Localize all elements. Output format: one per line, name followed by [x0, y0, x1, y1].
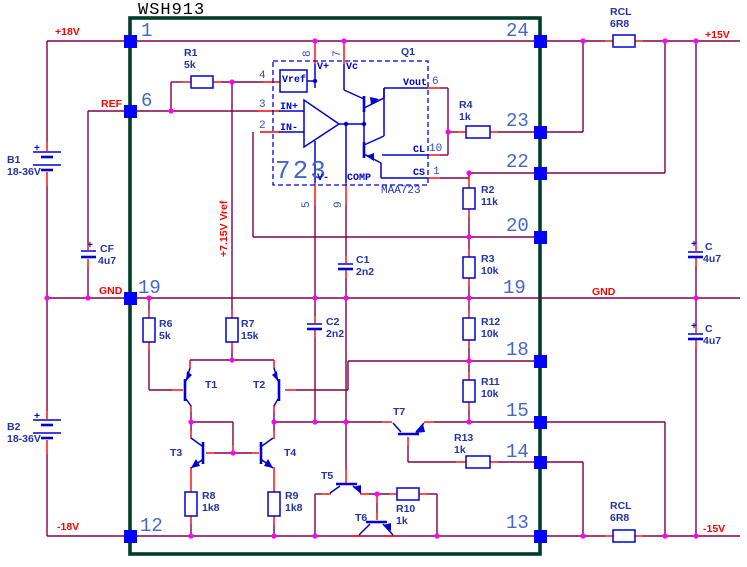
schematic-drawing	[0, 0, 747, 567]
cf-plus-sign: +	[87, 242, 93, 252]
label-r1-value: 5k	[184, 60, 196, 71]
ic-pin-7: 7	[333, 50, 344, 57]
net-label-gnd-right: GND	[592, 287, 615, 298]
resistor-r11	[463, 380, 475, 402]
pad-pin-13	[534, 530, 547, 543]
label-b1-ref: B1	[7, 155, 20, 166]
pin-number-left-12: 12	[140, 517, 163, 536]
resistor-r7	[226, 318, 238, 342]
net-label-plus18v: +18V	[55, 27, 80, 38]
label-ic-designator: Q1	[401, 47, 415, 58]
label-c-out-top-value: 4u7	[703, 254, 721, 265]
label-rcl-bottom-ref: RCL	[610, 501, 632, 512]
resistor-r8	[185, 492, 197, 516]
ic-terminal-in-minus: IN-	[280, 124, 298, 134]
pin-number-right-13: 13	[506, 514, 529, 533]
pad-pin-6	[124, 105, 137, 118]
label-rcl-top-ref: RCL	[610, 7, 632, 18]
label-r3-value: 10k	[481, 266, 499, 277]
ic-terminal-vc: Vc	[346, 63, 358, 73]
resistor-r6	[143, 318, 155, 342]
ic-terminal-in-plus: IN+	[280, 103, 298, 113]
ic-terminal-cs: CS	[413, 169, 425, 179]
canvas-background	[0, 0, 747, 567]
label-c-out-bottom-ref: C	[705, 324, 713, 335]
label-r6-value: 5k	[159, 331, 171, 342]
pin-number-right-22: 22	[506, 153, 529, 172]
label-r9-ref: R9	[285, 491, 298, 502]
label-c-out-bottom-value: 4u7	[703, 336, 721, 347]
label-b2-value: 18-36V	[7, 434, 41, 445]
pin-number-right-14: 14	[506, 443, 529, 462]
label-c1-value: 2n2	[356, 267, 374, 278]
net-label-minus18v: -18V	[57, 522, 79, 533]
label-r9-value: 1k8	[285, 503, 303, 514]
resistor-r4	[466, 126, 490, 138]
label-r10-ref: R10	[396, 504, 415, 515]
ic-pin-2: 2	[259, 121, 266, 132]
label-r10-value: 1k	[396, 516, 408, 527]
label-r4-ref: R4	[459, 100, 472, 111]
label-t5: T5	[321, 471, 333, 482]
pin-number-right-20: 20	[506, 217, 529, 236]
ic-terminal-vplus: V+	[317, 63, 329, 73]
label-t1: T1	[205, 380, 217, 391]
pin-number-right-23: 23	[506, 112, 529, 131]
pad-pin-24	[534, 35, 547, 48]
label-rcl-bottom-value: 6R8	[610, 513, 629, 524]
net-label-gnd-left: GND	[99, 286, 122, 297]
label-c2-value: 2n2	[326, 329, 344, 340]
pad-pin-14	[534, 456, 547, 469]
label-b2-ref: B2	[7, 422, 20, 433]
resistor-r10	[397, 488, 419, 500]
pin-number-left-1: 1	[141, 22, 152, 41]
label-rcl-top-value: 6R8	[610, 19, 629, 30]
ic-terminal-vout: Vout	[403, 79, 427, 89]
pad-pin-15	[534, 416, 547, 429]
pad-pin-23	[534, 126, 547, 139]
label-t3: T3	[170, 448, 182, 459]
resistor-r3	[463, 257, 475, 278]
pad-pin-20	[534, 231, 547, 244]
resistor-r2	[463, 188, 475, 209]
resistor-r1	[191, 76, 213, 88]
label-r13-value: 1k	[454, 445, 466, 456]
ic-pin-4: 4	[259, 71, 266, 82]
net-label-ref: REF	[101, 99, 122, 110]
label-r11-value: 10k	[481, 389, 499, 400]
label-r2-value: 11k	[481, 197, 498, 208]
ic-part-number: MAA723	[381, 186, 421, 197]
label-r7-value: 15k	[241, 331, 259, 342]
ic-terminal-comp: COMP	[347, 174, 371, 184]
pin-number-left-19: 19	[138, 279, 161, 298]
label-c2-ref: C2	[326, 317, 339, 328]
label-r1-ref: R1	[184, 48, 197, 59]
ic-terminal-vref: Vref	[282, 76, 306, 86]
resistor-rcl-top	[613, 35, 635, 47]
ic-pin-3: 3	[259, 100, 266, 111]
pin-number-right-15: 15	[506, 402, 529, 421]
pad-pin-18	[534, 355, 547, 368]
label-r8-value: 1k8	[202, 503, 220, 514]
c-out-bottom-plus-sign: +	[691, 323, 697, 333]
label-r6-ref: R6	[159, 319, 172, 330]
resistor-r12	[463, 318, 475, 340]
label-b1-value: 18-36V	[7, 167, 41, 178]
pin-number-right-18: 18	[506, 341, 529, 360]
label-cf-value: 4u7	[98, 256, 116, 267]
pad-pin-19-left	[124, 292, 137, 305]
net-label-plus15v: +15V	[705, 30, 730, 41]
ic-terminal-vminus: V-	[317, 174, 329, 184]
ic-pin-10: 10	[429, 144, 442, 155]
pad-pin-22	[534, 167, 547, 180]
label-r4-value: 1k	[459, 112, 471, 123]
ic-pin-9: 9	[334, 201, 345, 208]
ic-pin-6: 6	[432, 77, 439, 88]
label-r12-ref: R12	[481, 317, 500, 328]
pin-number-left-6: 6	[141, 92, 152, 111]
label-r2-ref: R2	[481, 185, 494, 196]
pin-number-right-19: 19	[503, 279, 526, 298]
pin-number-right-24: 24	[506, 22, 529, 41]
module-title: WSH913	[138, 2, 205, 19]
b1-plus-sign: +	[34, 145, 40, 155]
label-r3-ref: R3	[481, 254, 494, 265]
label-t7: T7	[393, 407, 405, 418]
ic-pin-5: 5	[302, 201, 313, 208]
label-c1-ref: C1	[356, 255, 369, 266]
schematic-page: WSH913 1 6 19 12 24 23 22 20 19 18 15 14…	[0, 0, 747, 567]
pad-pin-12	[124, 530, 137, 543]
ic-terminal-cl: CL	[413, 146, 425, 156]
label-t2: T2	[253, 380, 265, 391]
ic-pin-8: 8	[303, 50, 314, 57]
label-r7-ref: R7	[241, 319, 254, 330]
pad-pin-1	[124, 35, 137, 48]
label-r13-ref: R13	[454, 433, 473, 444]
c-out-top-plus-sign: +	[691, 241, 697, 251]
label-r8-ref: R8	[202, 491, 215, 502]
label-r12-value: 10k	[481, 329, 499, 340]
resistor-rcl-bottom	[613, 530, 635, 542]
net-label-minus15v: -15V	[703, 524, 725, 535]
label-c-out-top-ref: C	[705, 242, 713, 253]
b2-plus-sign: +	[34, 413, 40, 423]
ic-pin-1: 1	[433, 167, 440, 178]
resistor-r13	[466, 456, 490, 468]
label-r11-ref: R11	[481, 377, 500, 388]
net-label-vref-rail: +7.15V Vref	[219, 201, 230, 257]
label-t6: T6	[355, 513, 367, 524]
label-t4: T4	[284, 448, 296, 459]
label-cf-ref: CF	[100, 244, 114, 255]
resistor-r9	[268, 492, 280, 516]
